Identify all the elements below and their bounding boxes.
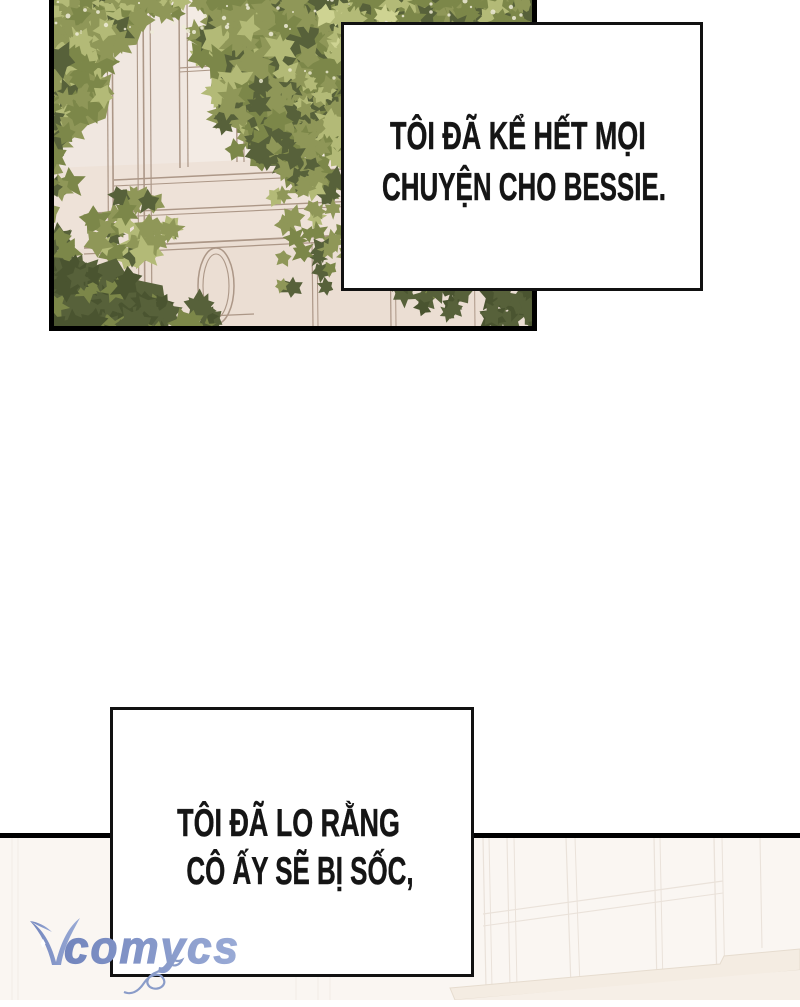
svg-text:comycs: comycs	[64, 922, 240, 973]
